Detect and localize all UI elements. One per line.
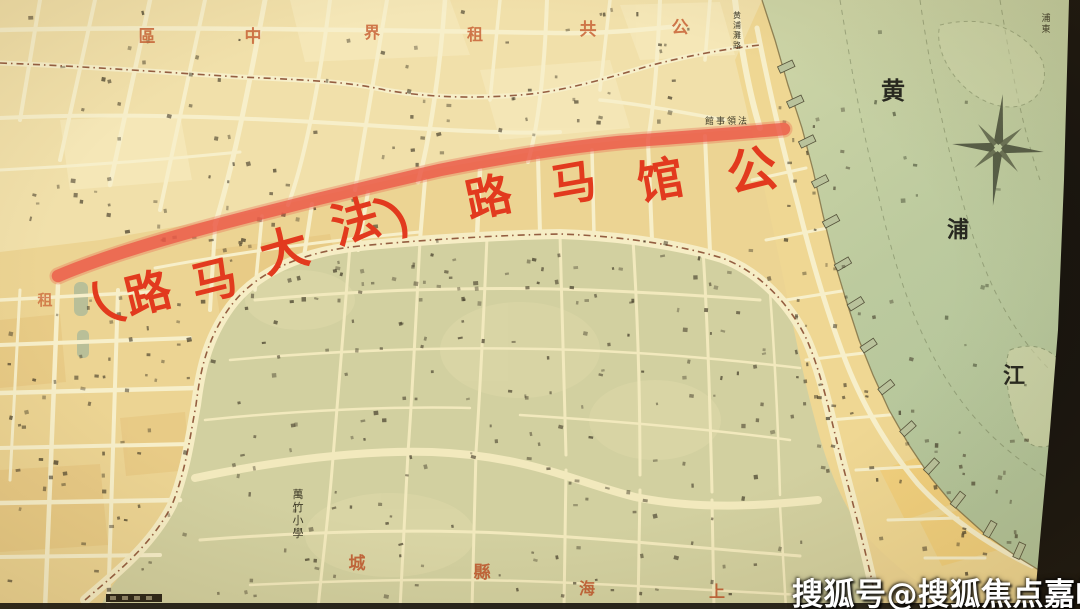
map-speckle <box>273 169 277 173</box>
map-speckle <box>251 294 254 299</box>
map-speckle <box>117 137 121 141</box>
map-speckle <box>664 43 667 46</box>
map-speckle <box>611 589 615 591</box>
map-speckle <box>410 148 415 152</box>
map-speckle <box>793 179 797 182</box>
map-speckle <box>577 119 580 122</box>
map-speckle <box>22 425 26 428</box>
old-city-label-char: 上 <box>709 582 725 601</box>
map-speckle <box>49 476 53 480</box>
map-speckle <box>826 469 830 473</box>
map-speckle <box>532 133 535 136</box>
map-speckle <box>120 441 124 444</box>
map-speckle <box>145 374 148 377</box>
map-speckle <box>94 570 99 573</box>
map-speckle <box>576 301 579 305</box>
map-speckle <box>842 265 846 268</box>
map-speckle <box>189 104 193 108</box>
map-speckle <box>8 363 12 366</box>
map-speckle <box>689 394 694 398</box>
map-speckle <box>358 290 362 294</box>
street-label-char: 小 <box>293 514 304 527</box>
map-speckle <box>392 146 395 149</box>
red-route-label-char: 馆 <box>633 150 688 211</box>
map-speckle <box>177 343 181 345</box>
map-speckle <box>573 266 578 269</box>
map-speckle <box>711 517 714 520</box>
map-speckle <box>511 97 514 100</box>
map-speckle <box>790 415 794 419</box>
map-speckle <box>812 192 815 195</box>
map-speckle <box>843 383 847 387</box>
map-speckle <box>1003 471 1006 475</box>
concession-label-char: 租 <box>37 291 52 309</box>
map-speckle <box>779 106 782 109</box>
map-speckle <box>813 125 815 128</box>
map-speckle <box>103 375 106 378</box>
map-speckle <box>527 259 531 263</box>
map-speckle <box>710 332 712 335</box>
map-speckle <box>636 12 638 16</box>
map-speckle <box>53 460 58 465</box>
map-speckle <box>499 574 501 576</box>
concession-label: 租 <box>37 291 52 309</box>
map-speckle <box>663 241 668 246</box>
map-speckle <box>546 467 550 470</box>
street-label-char: 灘 <box>733 30 741 40</box>
map-speckle <box>218 78 221 82</box>
map-speckle <box>334 491 336 494</box>
map-speckle <box>872 315 876 319</box>
map-speckle <box>956 542 960 546</box>
map-speckle <box>449 277 453 279</box>
map-speckle <box>337 299 340 303</box>
map-speckle <box>682 376 687 380</box>
map-speckle <box>576 546 580 549</box>
red-route-label-char: 公 <box>722 138 781 204</box>
map-speckle <box>94 374 99 377</box>
map-speckle <box>470 452 472 454</box>
map-speckle <box>187 377 190 379</box>
map-speckle <box>691 484 694 488</box>
map-speckle <box>147 353 151 356</box>
map-speckle <box>840 150 844 154</box>
map-speckle <box>390 515 393 517</box>
map-speckle <box>419 298 423 302</box>
map-speckle <box>333 574 336 578</box>
map-speckle <box>457 287 461 291</box>
map-speckle <box>8 331 13 336</box>
map-speckle <box>763 348 766 351</box>
map-speckle <box>248 244 252 248</box>
district-label-char: 公 <box>672 18 689 38</box>
map-speckle <box>985 284 988 287</box>
map-speckle <box>411 265 414 269</box>
map-speckle <box>350 505 353 508</box>
map-speckle <box>555 75 558 78</box>
map-speckle <box>420 345 424 349</box>
map-speckle <box>784 238 789 242</box>
map-speckle <box>527 457 532 460</box>
map-speckle <box>313 130 317 134</box>
map-speckle <box>997 475 1002 480</box>
map-speckle <box>569 286 574 289</box>
map-speckle <box>901 198 906 203</box>
river-label-char: 江 <box>1003 364 1025 389</box>
map-speckle <box>416 163 419 167</box>
map-speckle <box>639 592 642 596</box>
map-speckle <box>537 282 540 285</box>
map-speckle <box>43 487 47 492</box>
map-speckle <box>803 402 806 405</box>
map-speckle <box>79 355 82 359</box>
map-speckle <box>80 200 84 204</box>
old-city-label-char: 縣 <box>474 563 491 583</box>
map-speckle <box>250 579 254 583</box>
map-speckle <box>253 594 257 597</box>
map-speckle <box>42 395 46 399</box>
map-speckle <box>108 357 110 360</box>
map-speckle <box>102 490 106 494</box>
river-label-char: 浦 <box>947 217 969 243</box>
map-speckle <box>817 396 822 399</box>
map-speckle <box>802 272 807 276</box>
map-speckle <box>800 541 802 544</box>
map-speckle <box>787 205 790 207</box>
map-speckle <box>361 282 364 286</box>
map-speckle <box>584 299 589 302</box>
map-speckle <box>217 592 220 595</box>
map-speckle <box>142 60 146 64</box>
map-speckle <box>423 100 426 103</box>
map-speckle <box>440 151 444 154</box>
map-speckle <box>683 327 688 332</box>
map-speckle <box>573 582 576 585</box>
map-speckle <box>925 439 930 443</box>
map-speckle <box>572 98 575 101</box>
map-speckle <box>627 334 629 337</box>
street-label-char: 東 <box>1041 23 1050 35</box>
map-speckle <box>754 563 758 566</box>
map-speckle <box>803 379 807 383</box>
map-speckle <box>946 491 951 494</box>
map-speckle <box>911 410 914 413</box>
street-label-char: 法 <box>738 115 747 127</box>
map-speckle <box>878 30 882 34</box>
map-speckle <box>108 203 111 206</box>
map-speckle <box>415 584 419 587</box>
map-speckle <box>713 395 715 397</box>
map-speckle <box>672 79 676 82</box>
map-speckle <box>63 471 68 475</box>
map-speckle <box>148 428 152 432</box>
map-speckle <box>524 394 526 397</box>
map-speckle <box>138 504 141 508</box>
map-speckle <box>346 39 350 43</box>
map-speckle <box>94 191 97 193</box>
street-label-char: 萬 <box>293 488 304 501</box>
map-speckle <box>436 285 441 288</box>
map-speckle <box>631 299 634 303</box>
map-speckle <box>795 314 798 317</box>
map-speckle <box>528 89 532 92</box>
map-speckle <box>964 344 967 346</box>
street-label-char: 路 <box>733 40 741 50</box>
street-label-char: 領 <box>727 115 736 127</box>
map-speckle <box>557 253 560 257</box>
district-label-char: 界 <box>364 23 380 42</box>
map-speckle <box>477 301 481 306</box>
map-speckle <box>325 349 329 352</box>
map-speckle <box>971 482 975 486</box>
map-speckle <box>352 319 355 323</box>
map-speckle <box>214 136 219 141</box>
district-label-char: 中 <box>245 26 262 47</box>
map-speckle <box>797 299 800 302</box>
map-speckle <box>28 16 33 20</box>
map-speckle <box>841 107 846 112</box>
map-speckle <box>378 503 382 506</box>
map-speckle <box>490 424 492 427</box>
map-speckle <box>736 311 740 314</box>
map-speckle <box>833 324 837 329</box>
map-speckle <box>573 504 578 506</box>
map-speckle <box>633 511 637 514</box>
red-route-label-char: 马 <box>546 153 601 214</box>
map-speckle <box>933 485 937 490</box>
map-speckle <box>414 46 418 50</box>
map-speckle <box>596 121 601 125</box>
map-speckle <box>603 13 606 17</box>
street-label-char: 黄 <box>733 10 741 20</box>
map-speckle <box>585 498 588 501</box>
map-speckle <box>177 303 181 306</box>
map-speckle <box>373 411 378 416</box>
map-speckle <box>380 347 383 350</box>
map-speckle <box>102 473 105 477</box>
map-speckle <box>117 102 121 106</box>
map-speckle <box>286 184 291 187</box>
map-speckle <box>125 388 129 392</box>
map-speckle <box>607 343 611 347</box>
map-speckle <box>107 588 111 592</box>
map-speckle <box>869 466 874 469</box>
map-speckle <box>189 73 193 77</box>
map-speckle <box>806 362 808 366</box>
watermark: 搜狐号@搜狐焦点嘉峪关站 <box>792 569 1080 609</box>
map-speckle <box>722 565 725 569</box>
map-speckle <box>727 271 732 274</box>
map-speckle <box>413 281 418 286</box>
map-speckle <box>983 552 988 555</box>
map-speckle <box>410 115 413 119</box>
map-speckle <box>913 164 917 167</box>
map-speckle <box>996 188 1001 191</box>
map-speckle <box>447 119 450 122</box>
map-speckle <box>656 402 658 405</box>
map-speckle <box>833 187 836 191</box>
map-speckle <box>253 435 256 438</box>
map-speckle <box>658 43 662 46</box>
map-speckle <box>825 263 827 267</box>
map-speckle <box>965 101 968 104</box>
map-speckle <box>74 376 78 380</box>
map-speckle <box>355 348 359 353</box>
map-speckle <box>295 422 298 426</box>
historical-map-photo: 區中界租共公 租 城縣海上 黄浦江 黄浦灘路館事領法萬竹小學浦東 （路马大法）路… <box>0 0 1080 609</box>
map-speckle <box>495 439 499 443</box>
map-speckle <box>737 371 739 375</box>
map-speckle <box>382 418 387 422</box>
map-speckle <box>787 162 792 165</box>
map-speckle <box>1007 541 1012 544</box>
map-speckle <box>561 594 565 598</box>
street-label-char: 浦 <box>1041 12 1050 24</box>
map-speckle <box>60 66 65 69</box>
map-speckle <box>643 240 646 242</box>
map-speckle <box>962 473 965 476</box>
bottom-street-label-bar <box>106 594 162 602</box>
map-speckle <box>1010 440 1015 443</box>
map-speckle <box>301 297 306 302</box>
map-speckle <box>313 559 317 563</box>
map-speckle <box>446 104 451 107</box>
map-speckle <box>431 370 434 373</box>
map-speckle <box>420 136 425 140</box>
map-speckle <box>753 365 757 369</box>
map-speckle <box>505 41 509 43</box>
map-speckle <box>555 280 559 285</box>
map-speckle <box>879 536 883 540</box>
map-speckle <box>227 180 229 183</box>
district-label-char: 租 <box>467 25 483 44</box>
district-label-char: 共 <box>580 20 597 40</box>
map-speckle <box>102 452 105 456</box>
map-speckle <box>749 249 754 252</box>
map-speckle <box>826 417 830 420</box>
street-label-char: 浦 <box>733 20 741 30</box>
map-speckle <box>473 281 478 285</box>
map-speckle <box>238 39 240 41</box>
street-label-char: 館 <box>705 115 714 127</box>
map-speckle <box>157 225 160 229</box>
map-speckle <box>1015 534 1018 538</box>
map-speckle <box>817 444 821 448</box>
map-speckle <box>569 482 572 485</box>
map-speckle <box>792 138 794 142</box>
map-speckle <box>326 79 329 83</box>
map-speckle <box>129 337 133 342</box>
map-speckle <box>284 548 287 552</box>
map-speckle <box>272 373 277 378</box>
map-speckle <box>18 424 21 427</box>
map-speckle <box>753 475 758 480</box>
map-speckle <box>119 296 123 300</box>
map-speckle <box>575 479 580 482</box>
map-speckle <box>796 376 799 378</box>
map-speckle <box>760 402 764 406</box>
map-speckle <box>963 454 967 457</box>
map-speckle <box>421 565 424 568</box>
map-speckle <box>876 478 879 482</box>
map-speckle <box>81 542 86 545</box>
street-label-char: 竹 <box>293 500 304 514</box>
map-speckle <box>186 337 192 342</box>
map-speckle <box>934 451 937 454</box>
map-speckle <box>415 398 418 401</box>
map-speckle <box>39 458 44 461</box>
map-speckle <box>269 192 273 195</box>
map-speckle <box>899 411 901 415</box>
map-speckle <box>475 286 479 290</box>
map-speckle <box>729 593 732 595</box>
map-speckle <box>922 546 927 551</box>
map-speckle <box>248 492 251 497</box>
map-speckle <box>653 459 658 462</box>
map-speckle <box>36 202 40 204</box>
map-speckle <box>833 267 836 270</box>
map-canvas: 區中界租共公 租 城縣海上 黄浦江 黄浦灘路館事領法萬竹小學浦東 （路马大法）路… <box>0 0 1080 609</box>
map-speckle <box>226 206 229 211</box>
map-speckle <box>1014 530 1017 534</box>
map-speckle <box>245 307 249 310</box>
map-speckle <box>916 194 918 197</box>
map-speckle <box>959 465 963 469</box>
map-speckle <box>741 424 745 428</box>
map-speckle <box>935 443 939 448</box>
map-speckle <box>161 360 165 364</box>
map-speckle <box>756 418 760 422</box>
map-speckle <box>995 490 998 494</box>
map-speckle <box>73 193 77 198</box>
map-speckle <box>1024 439 1029 442</box>
map-speckle <box>481 339 484 343</box>
district-label-char: 區 <box>139 27 156 47</box>
map-speckle <box>945 316 949 320</box>
map-speckle <box>290 300 294 303</box>
map-speckle <box>626 490 630 495</box>
map-speckle <box>547 356 550 360</box>
map-speckle <box>399 554 401 557</box>
map-speckle <box>805 325 807 327</box>
map-speckle <box>704 308 708 312</box>
map-speckle <box>402 397 406 401</box>
map-speckle <box>363 438 366 441</box>
map-speckle <box>101 77 106 82</box>
map-speckle <box>958 431 960 434</box>
street-label-char: 事 <box>716 115 725 127</box>
map-speckle <box>508 390 512 393</box>
map-speckle <box>858 312 861 315</box>
map-speckle <box>549 391 551 394</box>
map-speckle <box>525 286 529 290</box>
map-speckle <box>641 371 644 373</box>
map-speckle <box>657 119 661 123</box>
map-speckle <box>371 282 374 285</box>
old-city-label-char: 海 <box>579 579 595 598</box>
map-speckle <box>70 178 75 183</box>
map-speckle <box>106 213 111 218</box>
street-label-char: 學 <box>293 527 304 540</box>
map-speckle <box>57 185 60 189</box>
map-speckle <box>682 462 685 466</box>
map-speckle <box>153 200 157 203</box>
map-speckle <box>109 525 114 528</box>
map-speckle <box>54 380 57 384</box>
map-speckle <box>423 281 426 284</box>
river-label-char: 黄 <box>881 77 905 105</box>
map-speckle <box>512 341 516 343</box>
